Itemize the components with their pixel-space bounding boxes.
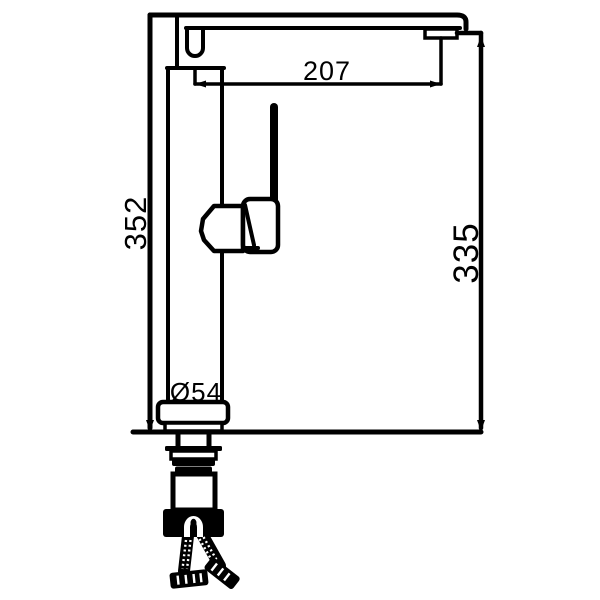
dim-label-outlet-height: 335 <box>447 222 486 283</box>
handle-cartridge-cap <box>201 206 243 251</box>
dim-label-spout-reach: 207 <box>303 56 351 86</box>
hose-fitting-left <box>169 569 208 589</box>
faucet-drawing: 207 335 352 Ø54 <box>0 0 600 600</box>
dim-label-overall-height: 352 <box>118 196 153 251</box>
dim-arrow-outlet-top <box>477 36 485 47</box>
shank-bellow-upper <box>172 459 215 466</box>
shank-body <box>173 474 215 510</box>
supply-shank <box>165 434 222 510</box>
technical-drawing-canvas: 207 335 352 Ø54 <box>0 0 600 600</box>
dim-arrow-outlet-bottom <box>477 420 485 431</box>
spout-joint-notch <box>187 28 203 56</box>
base-flange <box>158 402 228 423</box>
dim-arrow-overall-bottom <box>146 420 154 431</box>
